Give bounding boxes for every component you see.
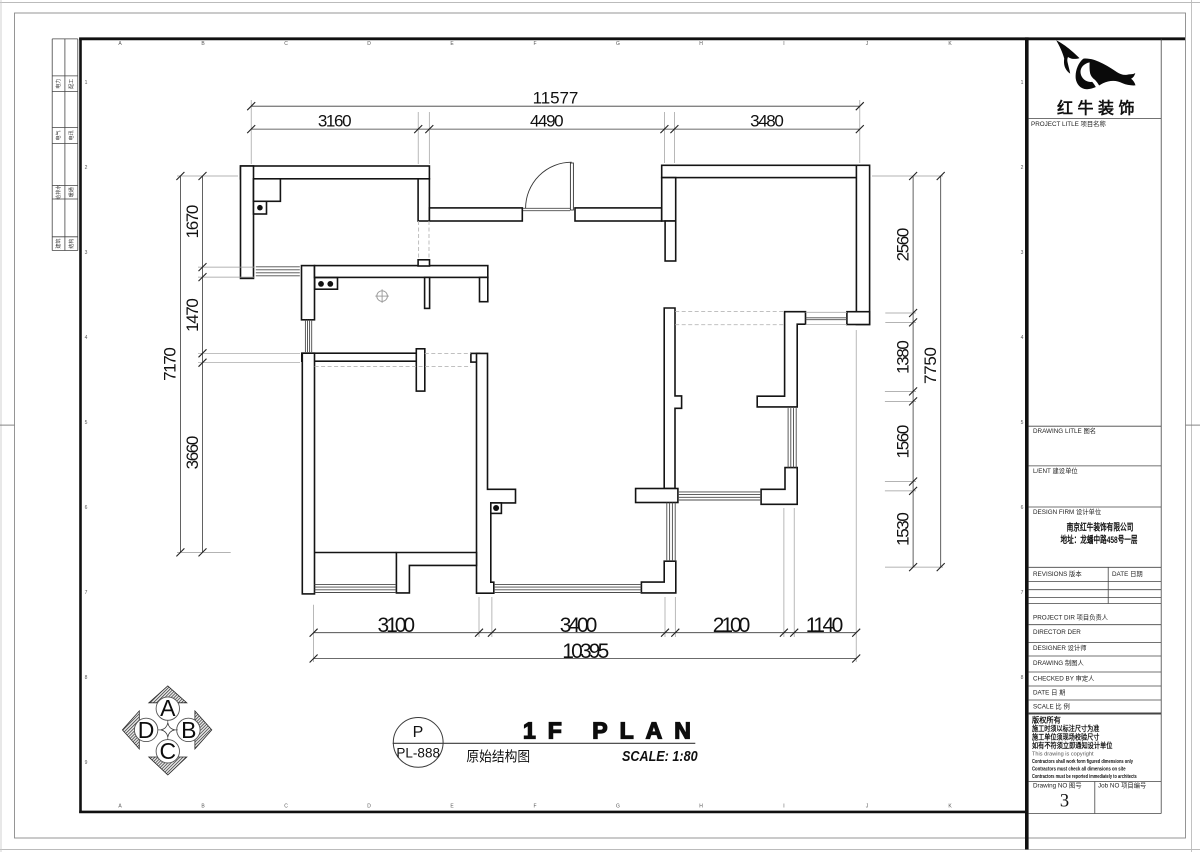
svg-text:6: 6 bbox=[1021, 505, 1024, 511]
svg-text:10395: 10395 bbox=[562, 640, 609, 663]
svg-text:F: F bbox=[533, 804, 536, 810]
svg-text:3100: 3100 bbox=[378, 614, 416, 637]
svg-text:结构: 结构 bbox=[68, 239, 75, 249]
svg-text:1: 1 bbox=[1021, 80, 1024, 86]
svg-text:PROJECT LITLE 项目名称: PROJECT LITLE 项目名称 bbox=[1031, 119, 1106, 128]
svg-text:5: 5 bbox=[1021, 420, 1024, 426]
svg-text:1560: 1560 bbox=[893, 425, 912, 459]
svg-text:3660: 3660 bbox=[183, 436, 202, 470]
svg-text:红牛装饰: 红牛装饰 bbox=[1057, 98, 1139, 117]
svg-text:DATE 日期: DATE 日期 bbox=[1112, 570, 1143, 578]
svg-text:地址：龙蟠中路458号一层: 地址：龙蟠中路458号一层 bbox=[1061, 534, 1138, 546]
svg-text:8: 8 bbox=[1021, 675, 1024, 681]
svg-text:配工: 配工 bbox=[69, 79, 75, 89]
svg-text:2: 2 bbox=[85, 165, 88, 171]
svg-text:1670: 1670 bbox=[183, 205, 202, 239]
svg-text:2: 2 bbox=[1021, 165, 1024, 171]
svg-text:1F PLAN: 1F PLAN bbox=[523, 718, 703, 744]
svg-text:3480: 3480 bbox=[750, 111, 784, 130]
svg-text:DESIGNER 设计师: DESIGNER 设计师 bbox=[1033, 643, 1087, 652]
svg-text:给排水: 给排水 bbox=[55, 185, 62, 200]
svg-text:建筑: 建筑 bbox=[55, 239, 62, 249]
svg-text:CHECKED BY 审定人: CHECKED BY 审定人 bbox=[1033, 674, 1095, 683]
svg-text:5: 5 bbox=[85, 420, 88, 426]
svg-text:7170: 7170 bbox=[161, 347, 180, 381]
svg-text:6: 6 bbox=[85, 505, 88, 511]
svg-text:G: G bbox=[616, 41, 620, 47]
svg-text:DESIGN FIRM 设计单位: DESIGN FIRM 设计单位 bbox=[1033, 507, 1102, 516]
svg-text:C: C bbox=[284, 41, 288, 47]
svg-text:C: C bbox=[284, 804, 288, 810]
svg-text:F: F bbox=[533, 41, 536, 47]
svg-text:B: B bbox=[181, 717, 196, 743]
svg-text:Contractors must check all dim: Contractors must check all dimensions on… bbox=[1032, 766, 1126, 771]
svg-text:H: H bbox=[699, 804, 703, 810]
svg-text:暖通: 暖通 bbox=[68, 187, 75, 197]
svg-text:A: A bbox=[160, 695, 176, 721]
svg-text:DIRECTOR DER: DIRECTOR DER bbox=[1033, 629, 1081, 636]
svg-text:3400: 3400 bbox=[560, 614, 598, 637]
svg-text:4: 4 bbox=[85, 335, 88, 341]
svg-text:7: 7 bbox=[85, 590, 88, 596]
svg-text:G: G bbox=[616, 804, 620, 810]
svg-text:8: 8 bbox=[85, 675, 88, 681]
svg-text:DATE 日 期: DATE 日 期 bbox=[1033, 689, 1065, 697]
svg-text:1380: 1380 bbox=[893, 340, 912, 374]
svg-text:PROJECT DIR 项目负责人: PROJECT DIR 项目负责人 bbox=[1033, 613, 1109, 622]
svg-text:3: 3 bbox=[1021, 250, 1024, 256]
svg-text:4: 4 bbox=[1021, 335, 1024, 341]
svg-text:I: I bbox=[783, 41, 784, 47]
svg-text:1470: 1470 bbox=[183, 298, 202, 332]
svg-text:原始结构图: 原始结构图 bbox=[466, 749, 530, 765]
svg-text:L/ENT 建设单位: L/ENT 建设单位 bbox=[1033, 466, 1078, 475]
svg-text:7: 7 bbox=[1021, 590, 1024, 596]
svg-text:版权所有: 版权所有 bbox=[1032, 716, 1061, 725]
svg-text:REVISIONS 版本: REVISIONS 版本 bbox=[1033, 569, 1082, 578]
svg-text:SCALE: 1:80: SCALE: 1:80 bbox=[622, 747, 698, 764]
svg-text:电力: 电力 bbox=[55, 79, 62, 89]
svg-text:I: I bbox=[783, 804, 784, 810]
svg-text:This drawing is copyright: This drawing is copyright bbox=[1032, 752, 1094, 758]
svg-text:PL-888: PL-888 bbox=[396, 746, 440, 761]
svg-text:1: 1 bbox=[85, 80, 88, 86]
svg-text:3: 3 bbox=[85, 250, 88, 256]
svg-text:11577: 11577 bbox=[533, 89, 579, 108]
svg-text:Drawing NO 图号: Drawing NO 图号 bbox=[1033, 781, 1082, 789]
svg-text:如有不符须立即通知设计单位: 如有不符须立即通知设计单位 bbox=[1032, 740, 1113, 750]
svg-text:电气: 电气 bbox=[55, 130, 62, 140]
svg-text:2560: 2560 bbox=[893, 228, 912, 262]
svg-text:DRAWING LITLE 图名: DRAWING LITLE 图名 bbox=[1033, 426, 1096, 435]
svg-text:电讯: 电讯 bbox=[68, 130, 75, 140]
svg-text:H: H bbox=[699, 41, 703, 47]
svg-text:D: D bbox=[367, 41, 371, 47]
svg-text:D: D bbox=[138, 717, 155, 743]
svg-text:施工单位须现场校验尺寸: 施工单位须现场校验尺寸 bbox=[1032, 732, 1100, 742]
svg-text:Job NO 项目编号: Job NO 项目编号 bbox=[1098, 780, 1146, 789]
svg-text:Contractors must be reported i: Contractors must be reported immediately… bbox=[1032, 774, 1137, 780]
svg-text:D: D bbox=[367, 804, 371, 810]
svg-text:施工时须以标注尺寸为准: 施工时须以标注尺寸为准 bbox=[1032, 723, 1100, 733]
svg-text:7750: 7750 bbox=[921, 347, 940, 384]
svg-text:Contractors shall work form fi: Contractors shall work form figured dime… bbox=[1032, 759, 1133, 765]
svg-text:4490: 4490 bbox=[530, 111, 564, 130]
svg-text:C: C bbox=[159, 738, 176, 764]
svg-text:3: 3 bbox=[1060, 792, 1069, 812]
svg-text:1140: 1140 bbox=[806, 614, 844, 637]
svg-text:P: P bbox=[413, 724, 424, 741]
svg-text:9: 9 bbox=[85, 760, 88, 766]
svg-text:DRAWING 制图人: DRAWING 制图人 bbox=[1033, 658, 1085, 667]
svg-text:1530: 1530 bbox=[893, 512, 912, 546]
svg-text:3160: 3160 bbox=[318, 111, 352, 130]
svg-text:2100: 2100 bbox=[713, 614, 751, 637]
svg-text:南京红牛装饰有限公司: 南京红牛装饰有限公司 bbox=[1067, 521, 1134, 533]
svg-text:SCALE 比 例: SCALE 比 例 bbox=[1033, 702, 1070, 711]
